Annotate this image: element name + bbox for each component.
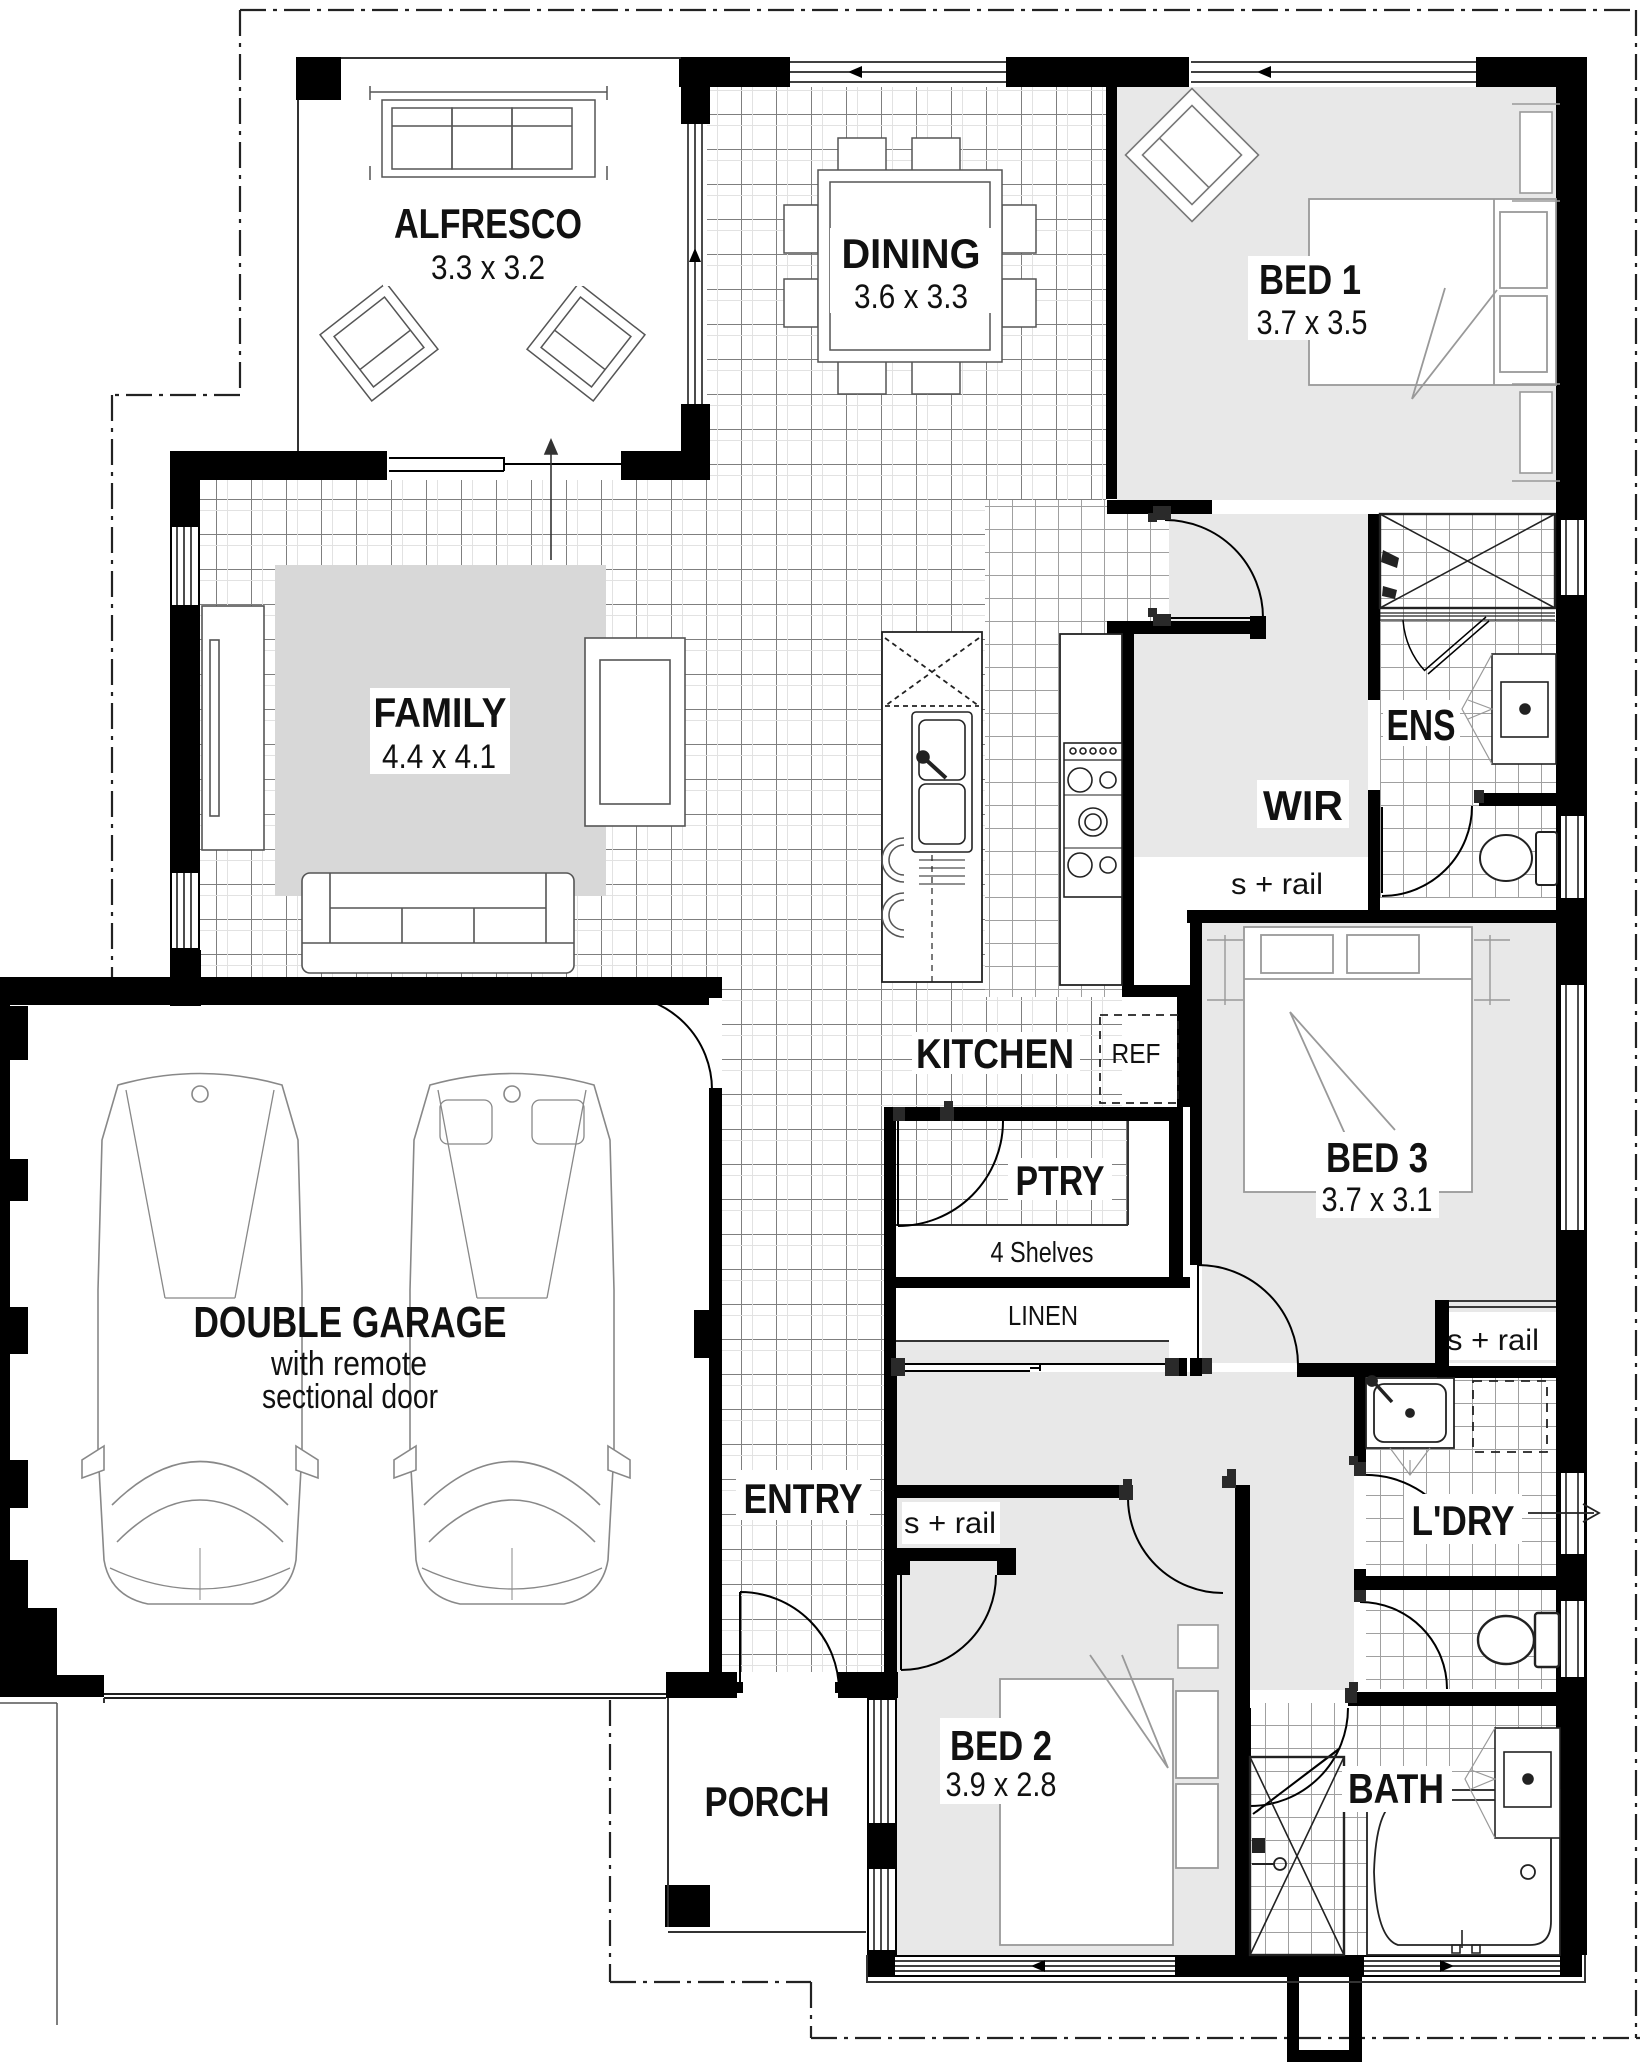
svg-text:KITCHEN: KITCHEN (916, 1030, 1074, 1077)
svg-text:ENS: ENS (1387, 701, 1456, 750)
svg-text:s + rail: s + rail (904, 1507, 996, 1540)
svg-text:PORCH: PORCH (705, 1778, 830, 1825)
svg-text:FAMILY: FAMILY (374, 689, 507, 736)
svg-text:3.7 x 3.1: 3.7 x 3.1 (1322, 1181, 1433, 1219)
svg-text:PTRY: PTRY (1016, 1157, 1105, 1204)
svg-text:REF: REF (1112, 1038, 1161, 1069)
svg-text:s + rail: s + rail (1447, 1324, 1539, 1357)
svg-text:BATH: BATH (1348, 1765, 1444, 1812)
svg-text:3.9 x 2.8: 3.9 x 2.8 (946, 1766, 1057, 1804)
svg-text:4.4 x 4.1: 4.4 x 4.1 (382, 738, 496, 776)
svg-text:BED 1: BED 1 (1259, 256, 1361, 303)
svg-text:s + rail: s + rail (1231, 868, 1323, 901)
svg-text:LINEN: LINEN (1008, 1300, 1078, 1331)
svg-text:BED 3: BED 3 (1326, 1134, 1428, 1181)
svg-text:4 Shelves: 4 Shelves (991, 1237, 1094, 1269)
svg-text:3.3 x 3.2: 3.3 x 3.2 (431, 249, 545, 287)
svg-text:3.7 x 3.5: 3.7 x 3.5 (1257, 304, 1368, 342)
svg-text:3.6 x 3.3: 3.6 x 3.3 (854, 278, 968, 316)
svg-text:DOUBLE GARAGE: DOUBLE GARAGE (194, 1298, 507, 1347)
svg-text:DINING: DINING (842, 230, 981, 277)
svg-text:BED 2: BED 2 (950, 1722, 1052, 1769)
svg-text:L'DRY: L'DRY (1412, 1497, 1515, 1544)
svg-text:WIR: WIR (1263, 782, 1343, 829)
svg-text:ENTRY: ENTRY (744, 1475, 863, 1522)
svg-text:ALFRESCO: ALFRESCO (394, 200, 582, 247)
svg-text:sectional door: sectional door (262, 1378, 438, 1416)
